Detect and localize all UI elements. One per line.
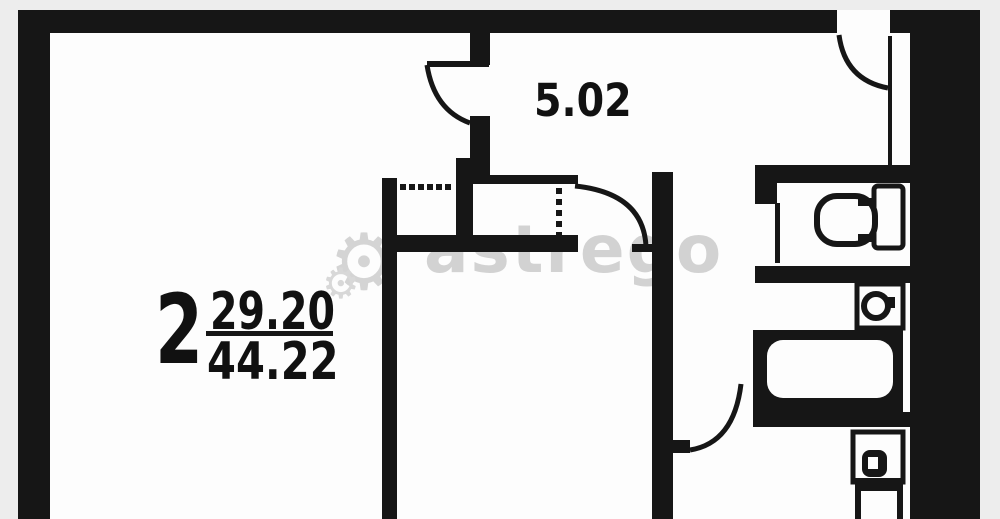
floorplan: ⚙ ⚙ astrego <box>0 0 1000 519</box>
plan-labels: 5.02 2 29.20 44.22 <box>0 0 1000 519</box>
room-label-hallway: 5.02 <box>534 78 632 123</box>
rooms-count: 2 <box>155 282 203 378</box>
total-area: 44.22 <box>207 336 339 388</box>
